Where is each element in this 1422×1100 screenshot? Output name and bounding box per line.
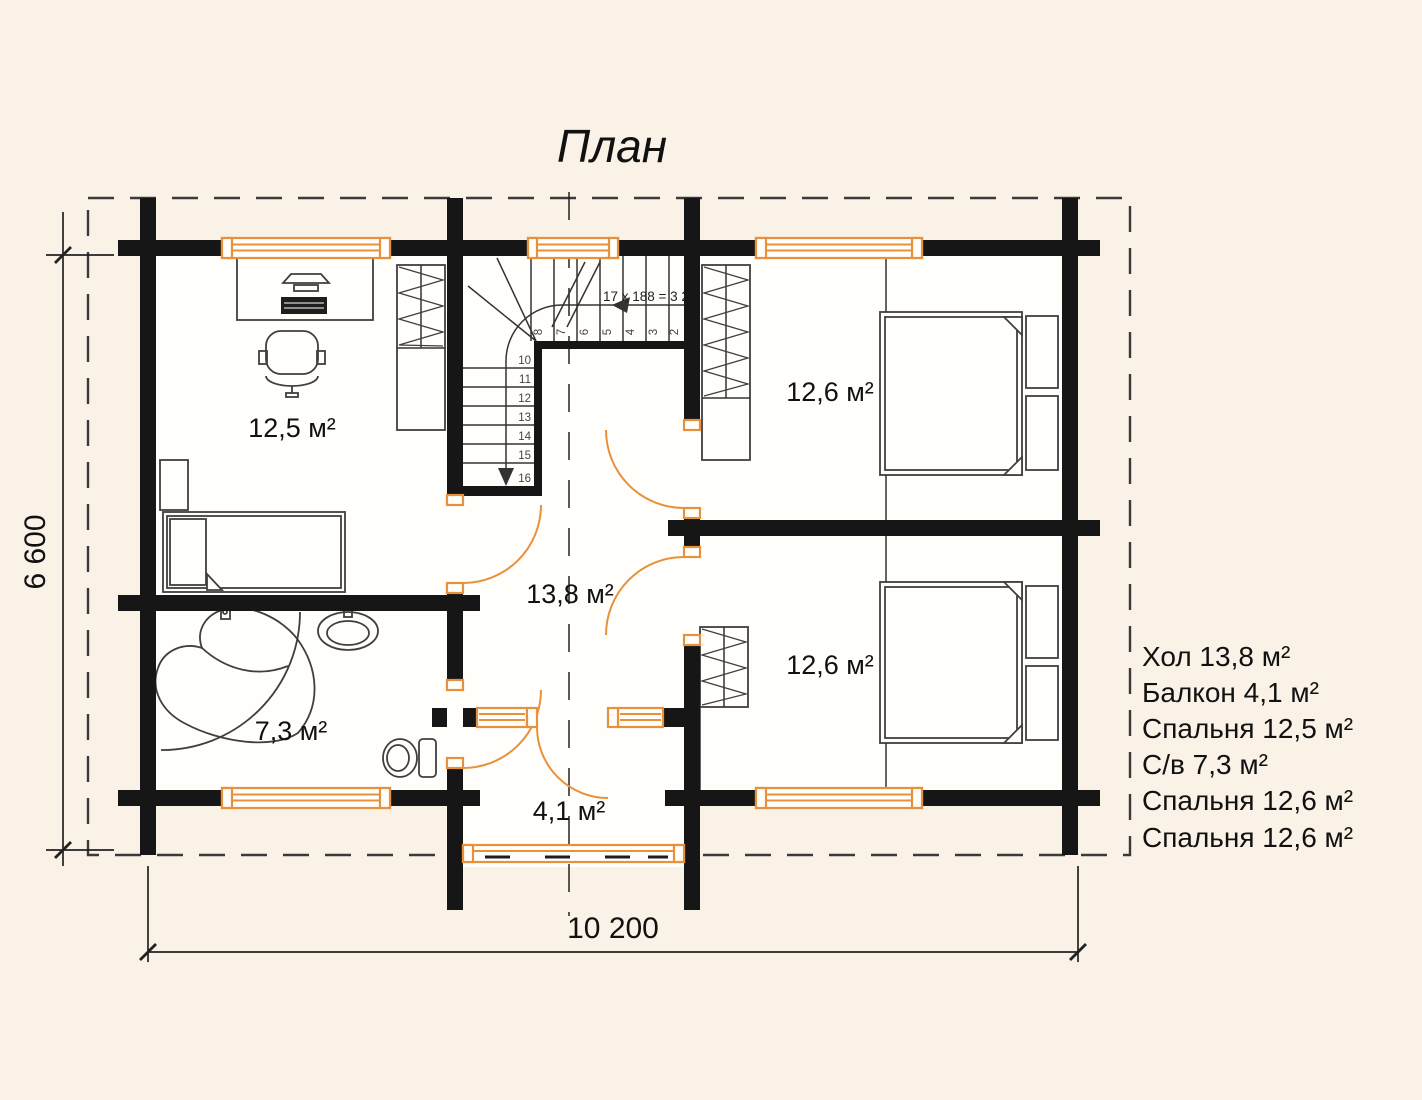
balcony-glazing <box>463 845 684 862</box>
step-number: 15 <box>518 450 531 462</box>
floor-plan-page: 17 x 188 = 3 2 8 7 6 5 4 3 2 10 11 12 13… <box>0 0 1422 1100</box>
wall-hall-right <box>684 256 700 430</box>
legend-item-hall: Хол 13,8 м² <box>1142 641 1290 672</box>
wall-left <box>140 240 156 806</box>
balcony-partition-window-right <box>618 708 663 727</box>
dimension-horizontal: 10 200 <box>140 866 1086 962</box>
step-number: 16 <box>518 473 531 485</box>
floor-plan-canvas: 17 x 188 = 3 2 8 7 6 5 4 3 2 10 11 12 13… <box>0 0 1422 1100</box>
step-number: 5 <box>602 329 614 335</box>
step-number: 10 <box>518 355 531 367</box>
room-label-hall: 13,8 м² <box>526 579 614 609</box>
stair-step-numbers-upper: 8 7 6 5 4 3 2 <box>533 328 681 335</box>
legend-item-bedroom-126a: Спальня 12,6 м² <box>1142 785 1353 816</box>
legend-item-bedroom-126b: Спальня 12,6 м² <box>1142 822 1353 853</box>
step-number: 2 <box>669 329 681 335</box>
dimension-vertical: 6 600 <box>19 212 114 866</box>
step-number: 4 <box>625 328 637 335</box>
wall-bedrooms-divider <box>668 520 1100 536</box>
window-top-right <box>756 238 922 258</box>
legend: Хол 13,8 м² Балкон 4,1 м² Спальня 12,5 м… <box>1142 641 1353 853</box>
step-number: 13 <box>518 412 531 424</box>
room-label-bedroom-left: 12,5 м² <box>248 413 336 443</box>
step-number: 8 <box>533 329 545 335</box>
window-top-center <box>528 238 618 258</box>
page-title: План <box>557 120 667 172</box>
room-label-bathroom: 7,3 м² <box>255 716 328 746</box>
room-label-bedroom-bottom-right: 12,6 м² <box>786 650 874 680</box>
window-bottom-left <box>222 788 390 808</box>
legend-item-bathroom: С/в 7,3 м² <box>1142 749 1268 780</box>
step-number: 6 <box>579 329 591 335</box>
room-label-bedroom-top-right: 12,6 м² <box>786 377 874 407</box>
legend-item-bedroom-125: Спальня 12,5 м² <box>1142 713 1353 744</box>
wall-hall-left <box>447 256 463 505</box>
legend-item-balcony: Балкон 4,1 м² <box>1142 677 1319 708</box>
window-bottom-right <box>756 788 922 808</box>
dimension-width-label: 10 200 <box>567 912 659 945</box>
wall-bedroom-bathroom-divider <box>118 595 480 611</box>
step-number: 7 <box>556 329 568 335</box>
step-number: 14 <box>518 431 531 443</box>
keyboard-icon <box>281 297 327 314</box>
dimension-height-label: 6 600 <box>19 514 52 589</box>
step-number: 12 <box>518 393 531 405</box>
stair-annotation: 17 x 188 = 3 2 <box>603 289 689 304</box>
room-label-balcony: 4,1 м² <box>533 796 606 826</box>
step-number: 11 <box>519 374 531 386</box>
window-top-left <box>222 238 390 258</box>
step-number: 3 <box>648 329 660 335</box>
balcony-partition-window-left <box>477 708 527 727</box>
